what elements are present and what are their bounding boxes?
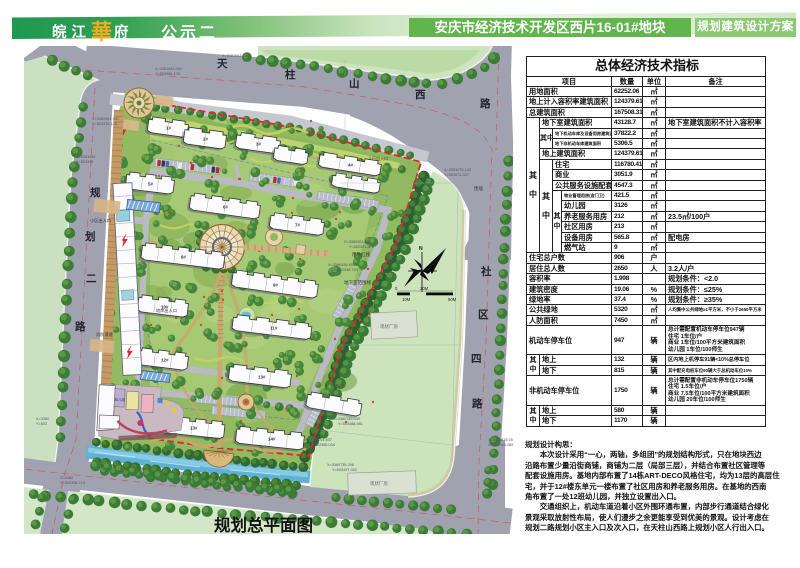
svg-text:现状厂房: 现状厂房 (380, 323, 398, 330)
svg-text:路: 路 (472, 397, 483, 410)
svg-text:X=3381075.133: X=3381075.133 (444, 168, 471, 172)
svg-text:14#: 14# (268, 437, 276, 442)
svg-text:用地红线: 用地红线 (352, 251, 370, 258)
svg-text:Y=502548.794: Y=502548.794 (333, 268, 358, 272)
svg-text:X=3380678.053: X=3380678.053 (488, 438, 515, 442)
svg-text:幼儿园: 幼儿园 (114, 397, 125, 403)
svg-text:路: 路 (480, 97, 491, 110)
svg-text:Y=503339.126: Y=503339.126 (92, 122, 117, 126)
svg-text:11#: 11# (270, 326, 278, 331)
svg-text:8#: 8# (181, 255, 187, 260)
svg-text:X=3381061.054: X=3381061.054 (155, 67, 182, 71)
svg-text:4#: 4# (348, 163, 354, 168)
svg-text:X=3381063.468: X=3381063.468 (222, 54, 249, 58)
svg-text:N: N (419, 246, 423, 252)
svg-text:Y=503488.981: Y=503488.981 (338, 422, 363, 426)
svg-text:G=502653.485: G=502653.485 (488, 443, 513, 447)
svg-text:Y=503339: Y=503339 (76, 160, 93, 164)
svg-text:12#: 12# (161, 358, 169, 363)
svg-text:1#: 1# (166, 126, 172, 131)
svg-text:Y=503497.052: Y=503497.052 (332, 468, 357, 472)
svg-text:划: 划 (85, 230, 96, 243)
svg-text:X=3380761.637: X=3380761.637 (305, 438, 332, 442)
svg-text:路: 路 (75, 320, 86, 333)
svg-text:Y=502361.876: Y=502361.876 (349, 245, 374, 249)
svg-text:消防通道: 消防通道 (96, 331, 114, 338)
svg-text:柱: 柱 (285, 68, 296, 81)
svg-text:X=3380: X=3380 (36, 417, 49, 421)
svg-text:X=3380951.853: X=3380951.853 (344, 240, 371, 244)
svg-text:地库出入口: 地库出入口 (156, 307, 177, 314)
svg-text:围墙: 围墙 (474, 185, 483, 192)
svg-text:X=3381040: X=3381040 (76, 155, 96, 159)
svg-text:规: 规 (90, 186, 101, 199)
svg-text:现状厂房: 现状厂房 (370, 480, 388, 487)
svg-text:50M: 50M (448, 297, 457, 302)
svg-text:X=3380: X=3380 (60, 476, 73, 480)
svg-text:Y=502398.713: Y=502398.713 (60, 481, 85, 485)
svg-text:Y=502485.034: Y=502485.034 (310, 443, 335, 447)
svg-text:13#: 13# (258, 375, 266, 380)
svg-text:10M: 10M (402, 297, 411, 302)
svg-text:西: 西 (415, 89, 426, 101)
svg-text:人行出入口: 人行出入口 (368, 155, 388, 161)
svg-text:小区出入口: 小区出入口 (90, 217, 111, 224)
svg-text:13#: 13# (190, 426, 198, 431)
svg-text:X=3380735.296: X=3380735.296 (327, 463, 354, 467)
svg-text:6#: 6# (223, 205, 229, 210)
svg-text:5#: 5# (148, 182, 154, 187)
svg-text:天: 天 (217, 58, 228, 70)
svg-text:X=3380938.655: X=3380938.655 (328, 263, 355, 267)
svg-text:7#: 7# (295, 223, 301, 228)
svg-text:四: 四 (471, 353, 482, 365)
svg-text:X=3380951.947: X=3380951.947 (92, 117, 119, 121)
svg-text:二: 二 (86, 273, 97, 285)
svg-text:山: 山 (349, 77, 360, 90)
svg-text:9#: 9# (273, 283, 279, 288)
svg-text:Y=503674.327: Y=503674.327 (444, 173, 469, 177)
svg-text:区: 区 (478, 309, 489, 321)
svg-text:X=3380783.039: X=3380783.039 (333, 417, 360, 421)
svg-text:Y=503: Y=503 (36, 422, 47, 426)
svg-text:20M: 20M (420, 286, 429, 291)
svg-text:社: 社 (480, 265, 492, 278)
svg-text:地下室范围线: 地下室范围线 (344, 279, 371, 286)
svg-text:Y=503355.109: Y=503355.109 (155, 72, 180, 76)
svg-text:2#: 2# (203, 137, 209, 142)
svg-text:3#: 3# (256, 142, 262, 147)
